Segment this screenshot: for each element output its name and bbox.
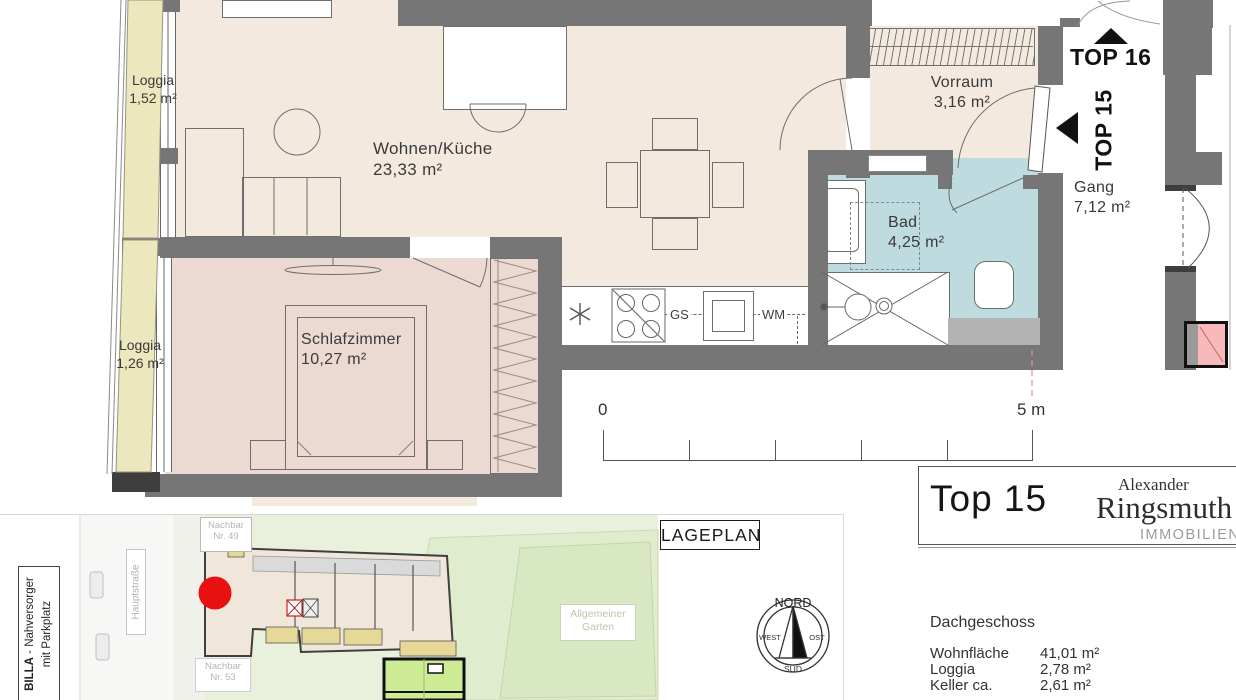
lageplan-title-box: LAGEPLAN [660, 520, 760, 550]
scale-tick [775, 440, 776, 460]
floorplan-page: GS WM [0, 0, 1236, 700]
gang-label: Gang7,12 m² [1074, 178, 1130, 218]
detail-label-0: Wohnfläche [930, 645, 1009, 662]
scale-end-label: 5 m [1017, 400, 1045, 420]
top15-arrow-icon [1056, 112, 1078, 144]
section-separator-vertical [843, 514, 844, 700]
bad-label: Bad4,25 m² [888, 213, 944, 253]
loggia-bottom-label: Loggia1,26 m² [105, 337, 175, 372]
compass-east-label: OST [809, 633, 825, 642]
compass-west-label: WEST [759, 633, 781, 642]
neighbor-49-box: NachbarNr. 49 [200, 517, 252, 552]
car-icon [90, 572, 103, 598]
detail-value-0: 41,01 m² [1040, 645, 1099, 662]
scale-start-label: 0 [598, 400, 607, 420]
wohnen-label: Wohnen/Küche23,33 m² [373, 138, 493, 181]
unit-title: Top 15 [930, 478, 1047, 520]
car-icon [96, 634, 109, 660]
top16-arrow-icon [1094, 28, 1128, 44]
logo-subtitle: IMMOBILIEN [1140, 527, 1236, 543]
neighbor-unit-highlight [1184, 321, 1228, 368]
vorraum-label: Vorraum3,16 m² [912, 73, 1012, 113]
top15-label: TOP 15 [1091, 89, 1118, 170]
detail-value-2: 2,61 m² [1040, 677, 1091, 694]
section-separator-horizontal [0, 514, 843, 515]
street-label: Hauptstraße [131, 564, 142, 619]
scale-tick [861, 440, 862, 460]
floor-label: Dachgeschoss [930, 614, 1035, 632]
scale-tick [603, 430, 604, 460]
billa-rest: - Nahversorger [24, 577, 36, 657]
schlafzimmer-label: Schlafzimmer10,27 m² [301, 330, 402, 370]
scale-tick [689, 440, 690, 460]
info-panel-divider [918, 547, 1236, 548]
unit-location-marker [199, 577, 232, 610]
sink-symbol-icon [570, 303, 590, 325]
scale-bar-line [603, 460, 1033, 461]
top16-label: TOP 16 [1070, 44, 1151, 71]
billa-bold: BILLA [24, 657, 36, 691]
neighbor-53-box: NachbarNr. 53 [195, 658, 251, 692]
scale-tick [1032, 430, 1033, 460]
detail-label-1: Loggia [930, 661, 975, 678]
side-table [274, 109, 320, 155]
shower-detail [820, 272, 948, 345]
billa-label-box: BILLA - Nahversorger mit Parkplatz [18, 566, 60, 700]
detail-value-1: 2,78 m² [1040, 661, 1091, 678]
scale-tick [947, 440, 948, 460]
compass-north-label: NORD [775, 596, 812, 610]
detail-label-2: Keller ca. [930, 677, 993, 694]
compass-icon: NORD WEST OST SÜD [757, 596, 829, 674]
loggia-top-label: Loggia1,52 m² [118, 72, 188, 107]
street-label-box: Hauptstraße [126, 549, 146, 635]
stove [612, 289, 665, 342]
compass-south-label: SÜD [784, 664, 802, 674]
logo-last-name: Ringsmuth [1096, 490, 1232, 526]
lageplan-title: LAGEPLAN [661, 525, 761, 545]
billa-line2: mit Parkplatz [39, 577, 56, 691]
garden-label-box: AllgemeinerGarten [560, 604, 636, 641]
